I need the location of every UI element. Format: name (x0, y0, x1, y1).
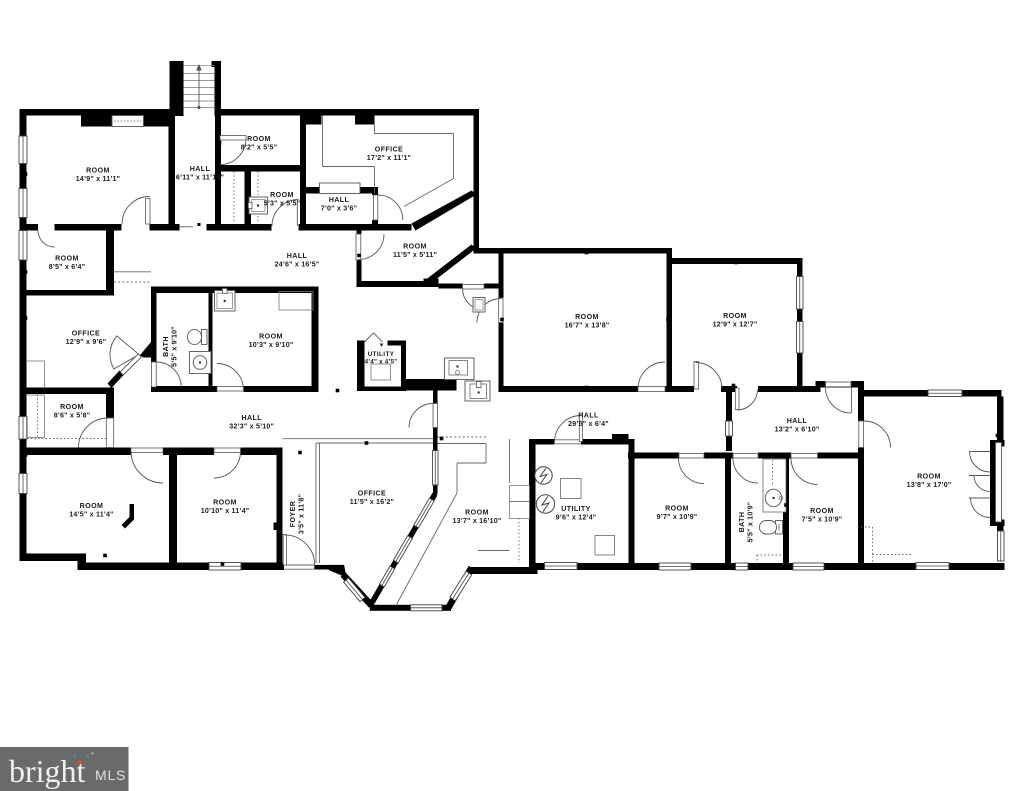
svg-text:5’3" x 5’5": 5’3" x 5’5" (264, 199, 301, 207)
svg-text:14’5" x 11’4": 14’5" x 11’4" (69, 510, 113, 518)
svg-text:6’11" x 11’10": 6’11" x 11’10" (176, 173, 224, 181)
svg-text:OFFICE: OFFICE (375, 145, 403, 153)
svg-text:8’5" x 6’4": 8’5" x 6’4" (49, 263, 86, 271)
svg-text:ROOM: ROOM (403, 242, 427, 250)
svg-text:ROOM: ROOM (259, 332, 283, 340)
svg-text:HALL: HALL (787, 417, 808, 425)
svg-text:12’9" x 12’7": 12’9" x 12’7" (713, 320, 758, 328)
svg-text:7’0" x 3’6": 7’0" x 3’6" (321, 204, 358, 212)
svg-text:ROOM: ROOM (60, 403, 84, 411)
svg-text:bright: bright (9, 753, 86, 789)
svg-text:13’7" x 16’10": 13’7" x 16’10" (453, 517, 502, 525)
svg-text:5’5" x 10’9": 5’5" x 10’9" (746, 502, 754, 543)
svg-text:10’3" x 9’10": 10’3" x 9’10" (249, 341, 294, 349)
svg-text:BATH: BATH (162, 336, 170, 357)
svg-text:BATH: BATH (738, 512, 746, 533)
svg-text:ROOM: ROOM (270, 191, 294, 199)
svg-text:MLS: MLS (95, 767, 126, 783)
svg-text:16’7" x 13’8": 16’7" x 13’8" (565, 321, 610, 329)
svg-text:ROOM: ROOM (723, 312, 747, 320)
svg-text:ROOM: ROOM (665, 504, 689, 512)
svg-text:HALL: HALL (578, 412, 599, 420)
svg-text:3’5" x 11’8": 3’5" x 11’8" (297, 494, 305, 534)
svg-text:9’6" x 12’4": 9’6" x 12’4" (556, 513, 597, 521)
svg-text:8’2" x 5’5": 8’2" x 5’5" (241, 143, 278, 151)
svg-text:FOYER: FOYER (289, 501, 297, 527)
svg-text:13’2" x 6’10": 13’2" x 6’10" (775, 425, 820, 433)
svg-text:10’10" x 11’4": 10’10" x 11’4" (201, 507, 250, 515)
svg-text:32’3" x 5’10": 32’3" x 5’10" (229, 423, 274, 431)
svg-text:11’5" x 5’11": 11’5" x 5’11" (393, 251, 437, 259)
svg-text:HALL: HALL (329, 196, 350, 204)
svg-text:ROOM: ROOM (213, 498, 237, 506)
svg-text:HALL: HALL (190, 165, 211, 173)
svg-text:ROOM: ROOM (86, 166, 110, 174)
svg-text:UTILITY: UTILITY (368, 351, 395, 358)
svg-text:OFFICE: OFFICE (358, 489, 386, 497)
svg-text:14’9" x 11’1": 14’9" x 11’1" (76, 175, 120, 183)
svg-text:ROOM: ROOM (917, 472, 941, 480)
svg-text:8’6" x 5’8": 8’6" x 5’8" (54, 411, 91, 419)
svg-text:17’2" x 11’1": 17’2" x 11’1" (367, 154, 411, 162)
svg-text:HALL: HALL (287, 252, 308, 260)
svg-text:29’5" x 6’4": 29’5" x 6’4" (568, 420, 609, 428)
svg-text:OFFICE: OFFICE (72, 329, 100, 337)
svg-text:UTILITY: UTILITY (561, 505, 591, 513)
svg-text:13’8" x 17’0": 13’8" x 17’0" (907, 481, 952, 489)
svg-text:7’5" x 10’9": 7’5" x 10’9" (802, 515, 843, 523)
svg-text:ROOM: ROOM (465, 508, 489, 516)
svg-text:ROOM: ROOM (55, 254, 79, 262)
svg-text:11’5" x 16’2": 11’5" x 16’2" (350, 498, 394, 506)
svg-text:24’6" x 16’5": 24’6" x 16’5" (275, 260, 320, 268)
svg-text:ROOM: ROOM (247, 135, 271, 143)
svg-text:5’5" x 9’10": 5’5" x 9’10" (170, 326, 178, 367)
svg-text:4’4" x 4’5": 4’4" x 4’5" (365, 359, 398, 366)
svg-text:ROOM: ROOM (810, 507, 834, 515)
svg-text:ROOM: ROOM (80, 502, 104, 510)
svg-text:9’7" x 10’9": 9’7" x 10’9" (657, 513, 698, 521)
svg-text:ROOM: ROOM (575, 313, 599, 321)
svg-text:12’9" x 9’6": 12’9" x 9’6" (66, 338, 107, 346)
svg-text:HALL: HALL (241, 414, 262, 422)
